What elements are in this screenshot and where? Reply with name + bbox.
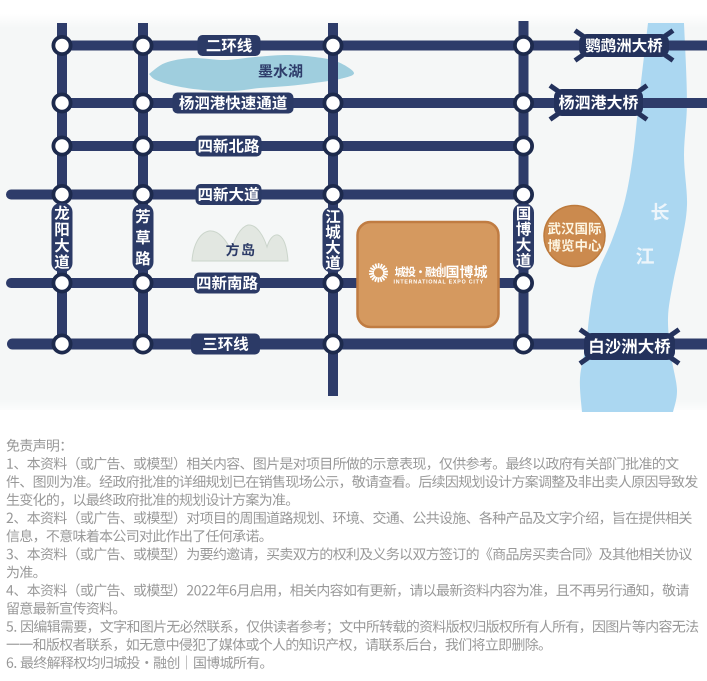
svg-text:INTERNATIONAL EXPO CITY: INTERNATIONAL EXPO CITY [394, 280, 484, 286]
